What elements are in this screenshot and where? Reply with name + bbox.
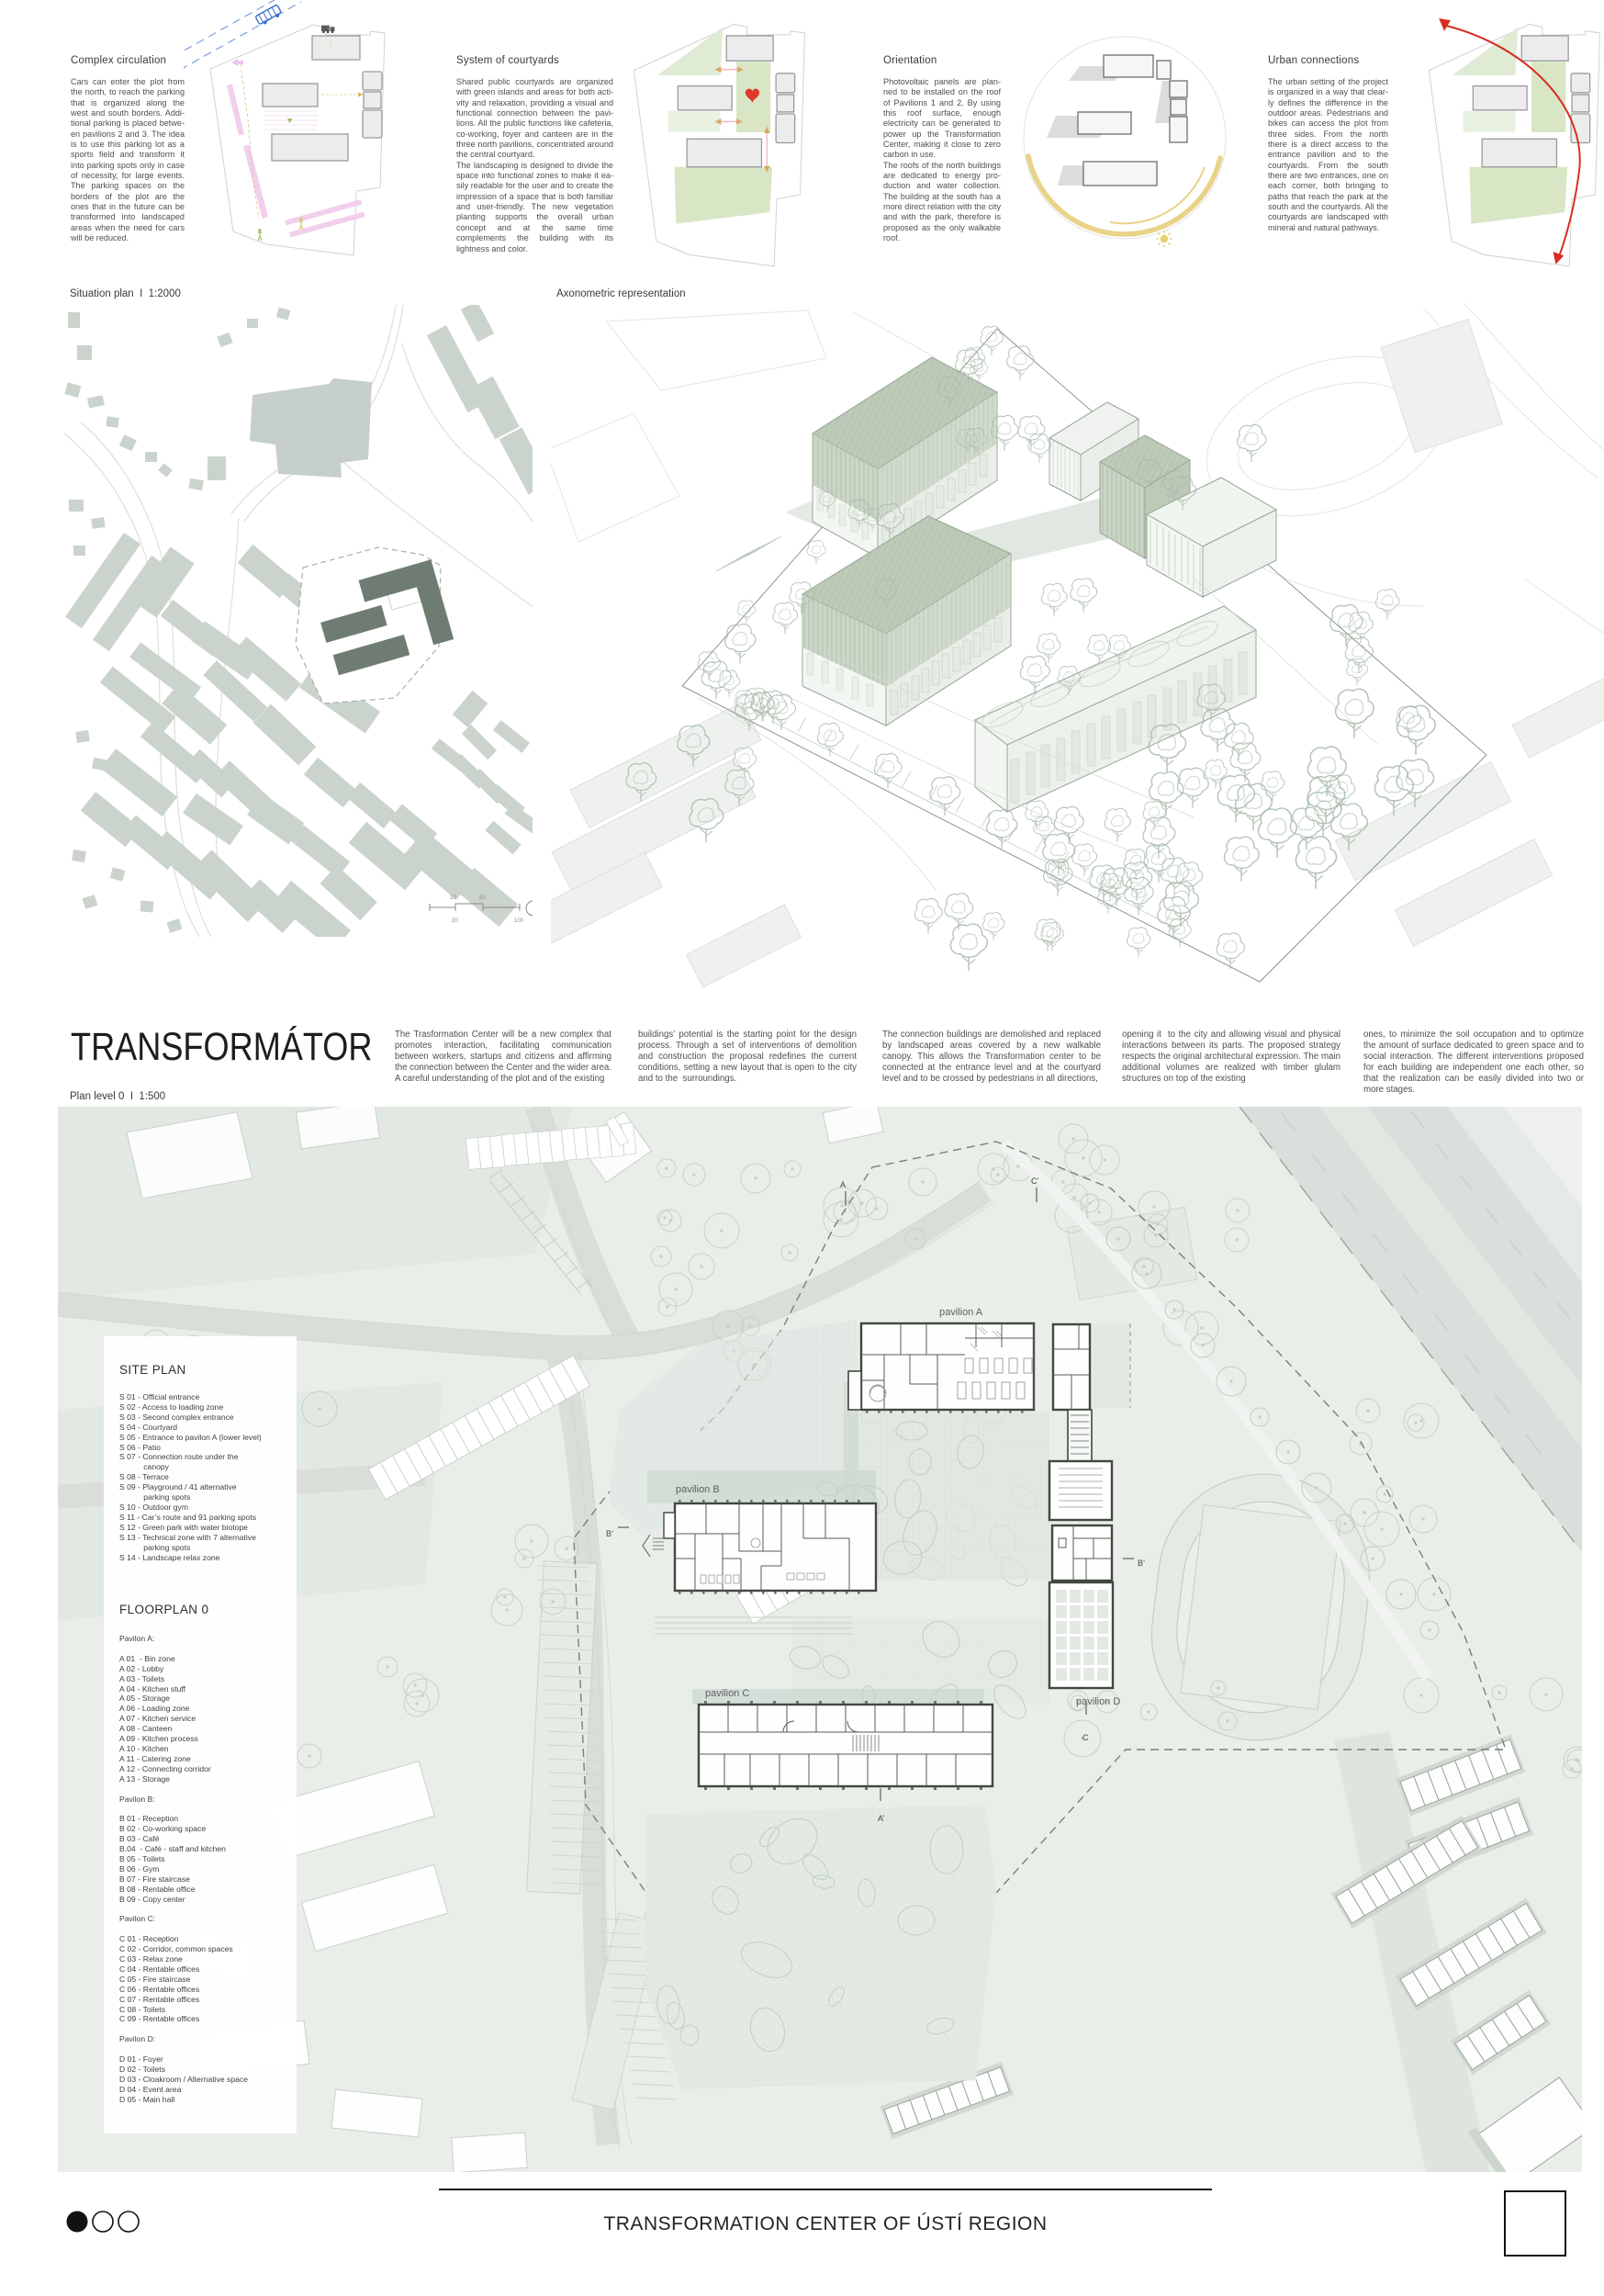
svg-text:B’: B’ (606, 1529, 613, 1538)
svg-text:10: 10 (450, 895, 456, 901)
svg-text:A: A (840, 1180, 846, 1189)
svg-text:A’: A’ (878, 1814, 884, 1823)
svg-text:20: 20 (452, 918, 458, 924)
svg-text:B’: B’ (1138, 1559, 1145, 1568)
svg-text:50: 50 (479, 895, 486, 901)
svg-text:100: 100 (514, 918, 524, 924)
svg-text:C: C (1082, 1733, 1089, 1742)
svg-text:C’: C’ (1031, 1176, 1039, 1186)
